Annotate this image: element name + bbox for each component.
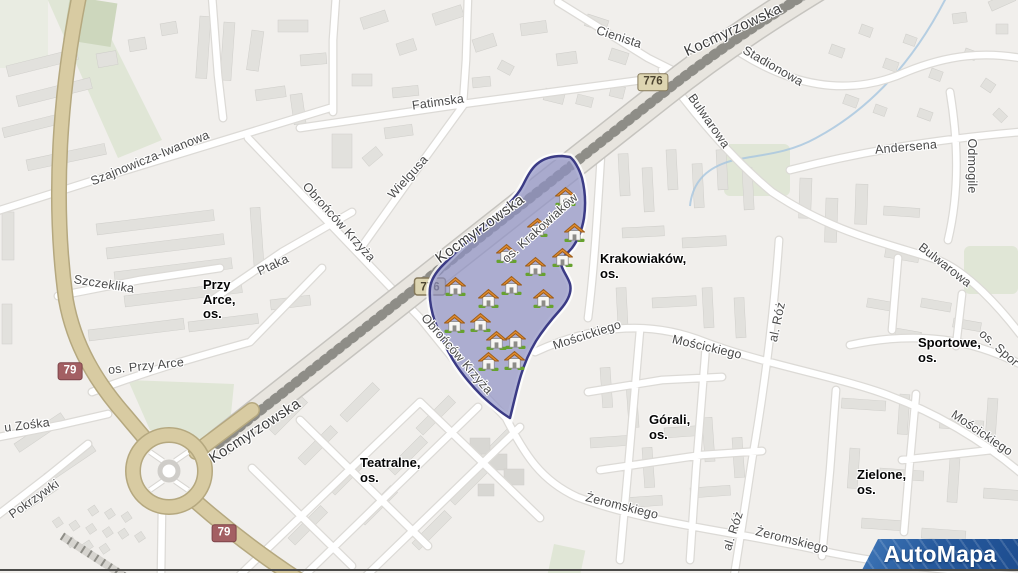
automapa-logo-text: AutoMapa bbox=[884, 541, 997, 568]
map-bottom-border bbox=[0, 569, 1018, 571]
map-canvas[interactable]: 776 bbox=[0, 0, 1018, 573]
automapa-logo: AutoMapa bbox=[862, 539, 1018, 570]
map-viewport[interactable]: 776 KocmyrzowskaKocmyrzowskaKocmyrzowska… bbox=[0, 0, 1018, 573]
